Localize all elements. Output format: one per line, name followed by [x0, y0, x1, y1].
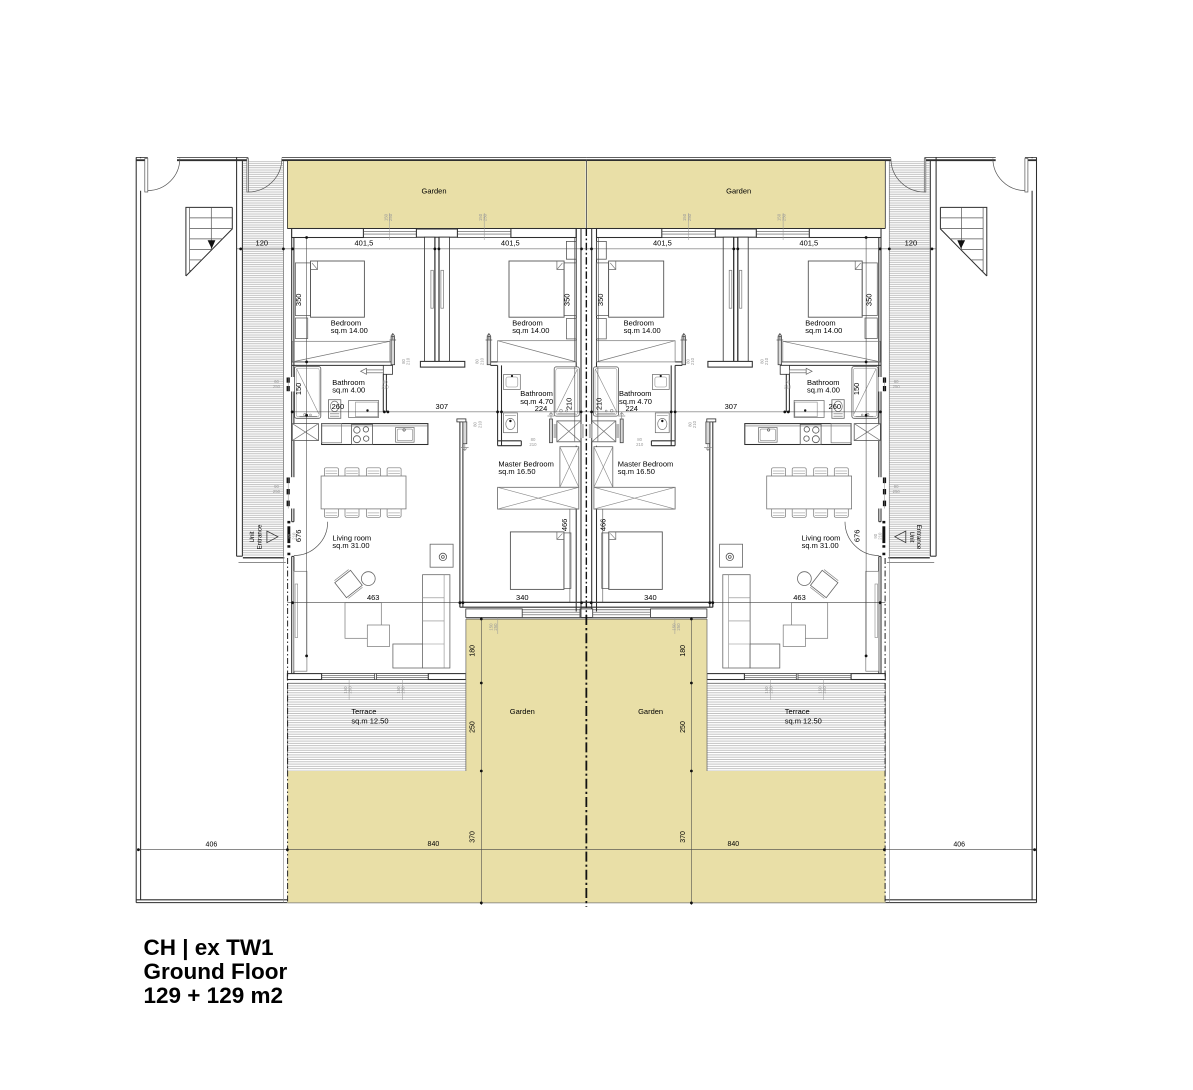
svg-text:sq.m 12.50: sq.m 12.50	[785, 717, 822, 726]
svg-text:250: 250	[493, 623, 498, 631]
svg-text:210: 210	[529, 442, 537, 447]
svg-text:350: 350	[294, 294, 303, 307]
svg-text:250: 250	[470, 721, 477, 733]
svg-text:401,5: 401,5	[355, 239, 374, 248]
svg-text:sq.m 4.00: sq.m 4.00	[807, 386, 840, 395]
svg-text:210: 210	[594, 398, 603, 411]
svg-text:340: 340	[516, 593, 529, 602]
svg-text:210: 210	[292, 532, 297, 540]
svg-text:210: 210	[477, 420, 482, 428]
svg-text:210: 210	[764, 357, 769, 365]
svg-text:sq.m 14.00: sq.m 14.00	[512, 326, 549, 335]
svg-text:250: 250	[676, 623, 681, 631]
svg-text:210: 210	[636, 442, 644, 447]
svg-text:840: 840	[727, 841, 739, 848]
svg-text:406: 406	[206, 842, 218, 849]
svg-text:Garden: Garden	[638, 707, 663, 716]
svg-text:120: 120	[256, 239, 269, 248]
svg-text:210: 210	[692, 420, 697, 428]
svg-text:120: 120	[905, 239, 918, 248]
svg-text:370: 370	[680, 831, 687, 843]
svg-text:350: 350	[563, 294, 572, 307]
svg-text:250: 250	[273, 384, 281, 389]
svg-text:210: 210	[784, 384, 792, 389]
svg-text:401,5: 401,5	[799, 239, 818, 248]
svg-text:350: 350	[596, 294, 605, 307]
svg-text:210: 210	[479, 357, 484, 365]
svg-text:260: 260	[829, 402, 842, 411]
svg-text:370: 370	[470, 831, 477, 843]
svg-text:Ground Floor: Ground Floor	[144, 959, 288, 984]
svg-text:250: 250	[483, 213, 488, 221]
svg-text:250: 250	[687, 213, 692, 221]
svg-text:463: 463	[367, 593, 380, 602]
svg-text:250: 250	[822, 686, 827, 694]
svg-text:224: 224	[625, 404, 638, 413]
svg-text:sq.m 14.00: sq.m 14.00	[805, 326, 842, 335]
svg-text:210: 210	[564, 398, 573, 411]
svg-text:sq.m 31.00: sq.m 31.00	[802, 541, 839, 550]
svg-text:Unit: Unit	[908, 531, 915, 542]
svg-text:466: 466	[599, 519, 608, 532]
svg-text:307: 307	[436, 402, 449, 411]
svg-text:250: 250	[347, 686, 352, 694]
svg-text:Garden: Garden	[421, 187, 446, 196]
svg-text:Garden: Garden	[510, 707, 535, 716]
svg-text:sq.m 14.00: sq.m 14.00	[331, 326, 368, 335]
svg-text:150: 150	[294, 383, 303, 396]
svg-text:463: 463	[793, 593, 806, 602]
svg-text:210: 210	[382, 384, 390, 389]
svg-text:466: 466	[560, 519, 569, 532]
svg-text:676: 676	[852, 530, 861, 543]
svg-text:840: 840	[428, 841, 440, 848]
svg-text:sq.m 4.00: sq.m 4.00	[332, 386, 365, 395]
svg-text:sq.m 14.00: sq.m 14.00	[624, 326, 661, 335]
svg-text:Garden: Garden	[726, 187, 751, 196]
svg-text:307: 307	[725, 402, 738, 411]
svg-text:250: 250	[893, 489, 901, 494]
svg-text:250: 250	[273, 489, 281, 494]
svg-text:210: 210	[690, 357, 695, 365]
svg-text:250: 250	[769, 686, 774, 694]
svg-text:250: 250	[401, 686, 406, 694]
svg-text:406: 406	[953, 842, 965, 849]
svg-text:250: 250	[680, 721, 687, 733]
svg-text:sq.m 16.50: sq.m 16.50	[618, 467, 655, 476]
svg-text:180: 180	[470, 645, 477, 657]
svg-text:250: 250	[781, 213, 786, 221]
svg-text:250: 250	[388, 213, 393, 221]
svg-text:sq.m 16.50: sq.m 16.50	[498, 467, 535, 476]
svg-text:210: 210	[878, 532, 883, 540]
svg-text:sq.m 12.50: sq.m 12.50	[351, 717, 388, 726]
svg-text:129 + 129 m2: 129 + 129 m2	[144, 983, 284, 1008]
svg-text:150: 150	[852, 383, 861, 396]
svg-text:Entrance: Entrance	[915, 525, 922, 550]
svg-text:Terrace: Terrace	[785, 707, 810, 716]
svg-text:210: 210	[405, 357, 410, 365]
svg-text:250: 250	[893, 384, 901, 389]
svg-text:340: 340	[644, 593, 657, 602]
svg-text:CH | ex TW1: CH | ex TW1	[144, 935, 274, 960]
svg-text:224: 224	[535, 404, 548, 413]
svg-text:Entrance: Entrance	[256, 524, 263, 549]
svg-text:sq.m 31.00: sq.m 31.00	[332, 541, 369, 550]
svg-text:Terrace: Terrace	[351, 707, 376, 716]
svg-text:401,5: 401,5	[501, 239, 520, 248]
svg-text:260: 260	[332, 402, 345, 411]
svg-text:401,5: 401,5	[653, 239, 672, 248]
svg-text:180: 180	[680, 645, 687, 657]
svg-text:350: 350	[865, 294, 874, 307]
svg-text:Unit: Unit	[249, 531, 256, 542]
